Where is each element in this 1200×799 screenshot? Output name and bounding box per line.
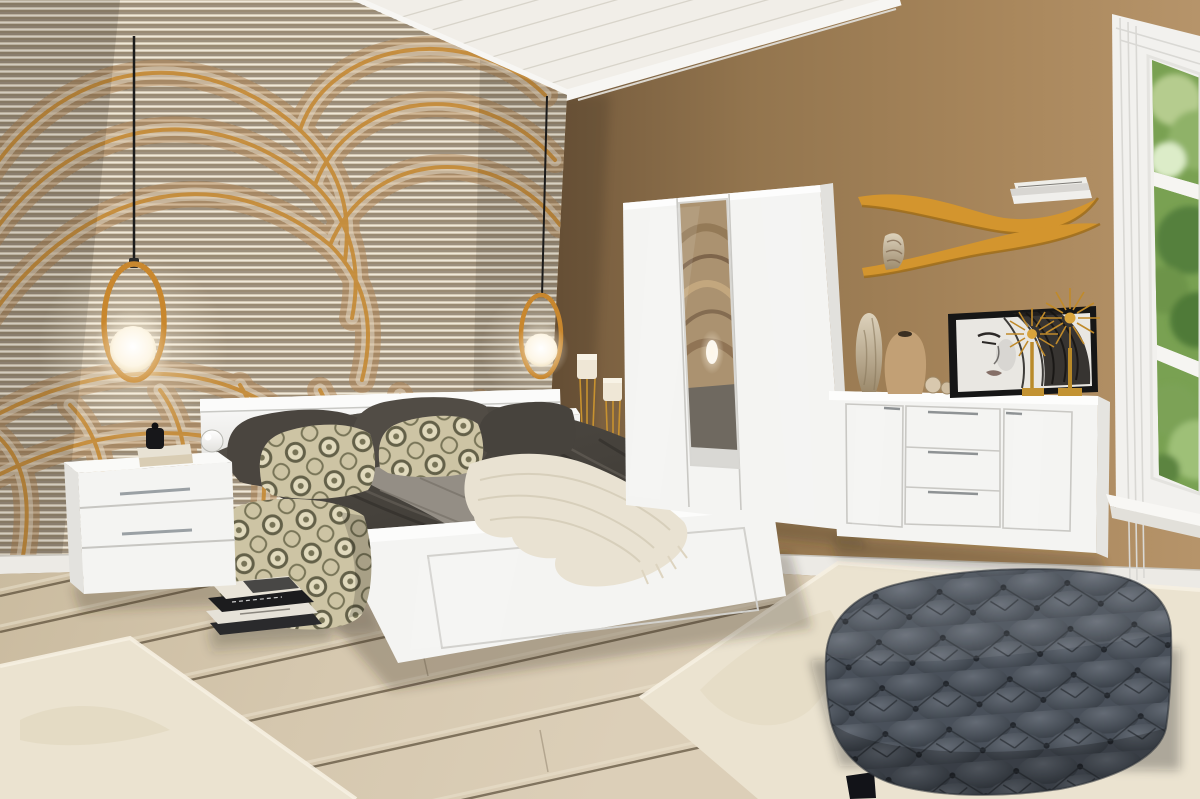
pendant-bulb	[525, 334, 558, 367]
wardrobe	[623, 183, 853, 532]
tall-vase	[856, 313, 883, 392]
bedroom-render	[0, 0, 1200, 799]
amber-vase	[885, 331, 926, 394]
pillow-ornate-left	[260, 425, 375, 499]
shell-ball	[925, 377, 941, 393]
sphere-ornament	[201, 430, 223, 452]
ottoman-foot	[846, 772, 876, 799]
window	[1106, 14, 1200, 582]
dresser	[829, 391, 1110, 558]
bedroom-scene	[0, 0, 1200, 799]
tufted-ottoman	[826, 569, 1172, 799]
pendant-bulb	[110, 326, 156, 372]
black-jar	[146, 428, 164, 449]
